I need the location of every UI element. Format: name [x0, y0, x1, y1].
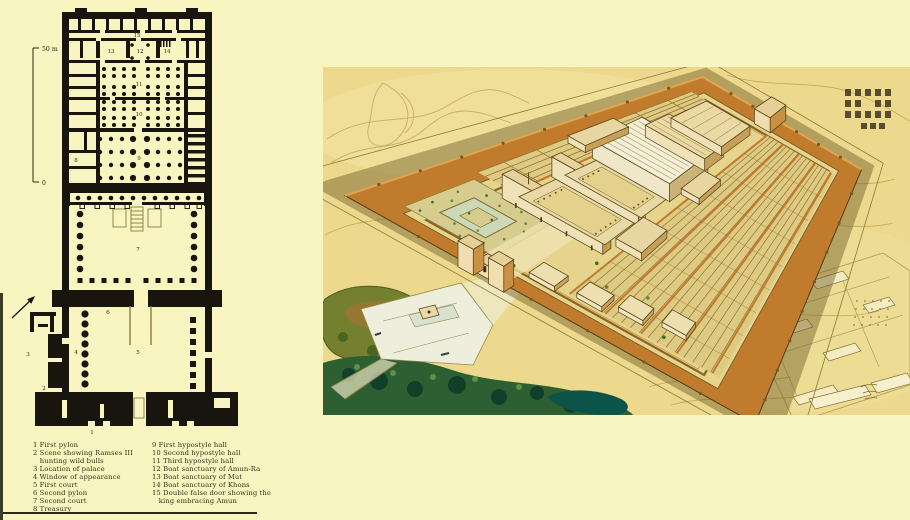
legend-line: hunting wild bulls: [33, 457, 151, 465]
book-page: 50 m 0 1 2 3 4 5 6 7 8 9 10 11 12 13 14 …: [0, 0, 910, 520]
plan-number-label: 3: [26, 352, 30, 358]
plan-number-label: 1: [90, 430, 94, 436]
legend-line: 15 Double false door showing the: [152, 489, 312, 497]
legend-line: 10 Second hypostyle hall: [152, 449, 312, 457]
legend-line: 7 Second court: [33, 497, 151, 505]
plan-number-label: 2: [42, 386, 46, 392]
scale-bar-label-bottom: 0: [42, 180, 46, 187]
plan-number-label: 13: [107, 49, 115, 55]
legend-line: 11 Third hypostyle hall: [152, 457, 312, 465]
plan-number-label: 12: [136, 49, 144, 55]
legend-line: 4 Window of appearance: [33, 473, 151, 481]
plan-walls: [30, 8, 238, 426]
legend-line: 6 Second pylon: [33, 489, 151, 497]
plan-number-label: 15: [133, 33, 141, 39]
legend-line: 3 Location of palace: [33, 465, 151, 473]
legend-line: 14 Boat sanctuary of Khons: [152, 481, 312, 489]
legend-line: king embracing Amun: [152, 497, 312, 505]
legend-line: 12 Boat sanctuary of Amun-Ra: [152, 465, 312, 473]
divider-rule: [3, 512, 257, 514]
legend-line: 2 Scene showing Ramses III: [33, 449, 151, 457]
temple-reconstruction-illustration: [323, 67, 910, 415]
plan-number-label: 11: [135, 82, 142, 88]
plan-number-label: 14: [163, 49, 171, 55]
plan-number-label: 5: [136, 350, 140, 356]
plan-number-label: 10: [135, 112, 143, 118]
plan-number-label: 8: [74, 158, 78, 164]
page-edge-shadow: [0, 293, 3, 520]
legend-line: 9 First hypostyle hall: [152, 441, 312, 449]
plan-number-label: 6: [106, 310, 110, 316]
plan-number-label: 9: [137, 156, 141, 162]
scale-bar-label-top: 50 m: [42, 46, 58, 53]
legend-column-right: 9 First hypostyle hall10 Second hypostyl…: [152, 441, 312, 505]
legend-column-left: 1 First pylon2 Scene showing Ramses III …: [33, 441, 151, 513]
legend-line: 13 Boat sanctuary of Mut: [152, 473, 312, 481]
plan-number-label: 4: [74, 350, 78, 356]
scale-bar: [33, 48, 39, 182]
legend-line: 1 First pylon: [33, 441, 151, 449]
plan-number-label: 7: [136, 247, 140, 253]
legend-line: 5 First court: [33, 481, 151, 489]
